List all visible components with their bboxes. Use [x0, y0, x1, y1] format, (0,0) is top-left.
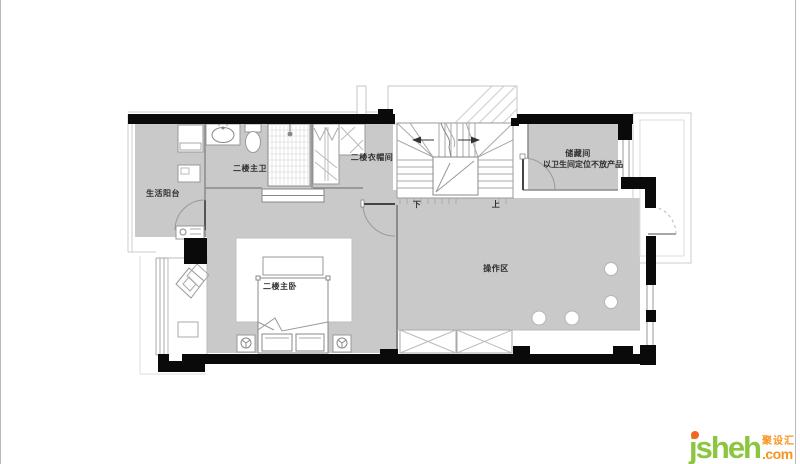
label-operation-area: 操作区 — [468, 264, 524, 273]
floor-spot — [565, 311, 579, 325]
wall-bump-bed — [380, 349, 398, 354]
wall-right-mullion — [646, 310, 656, 322]
jsheh-logo: jsheh 聚设汇 .com — [689, 435, 795, 461]
pillow-right — [296, 334, 324, 351]
terrace-door-arc — [648, 206, 676, 234]
shower-head — [288, 132, 293, 137]
label-cloakroom: 二楼衣帽间 — [343, 153, 401, 162]
floor-spot — [605, 296, 618, 309]
wall-bottom — [160, 354, 656, 364]
toilet-bowl — [246, 132, 261, 153]
wall-bump-1 — [513, 346, 530, 354]
wall-right-mid — [646, 236, 656, 285]
pillow-left — [262, 334, 292, 351]
label-storage: 储藏间 — [550, 149, 606, 158]
logo-dot-icon — [691, 431, 699, 439]
wall-pier-cloakroom — [378, 109, 393, 115]
floorplan-linework — [0, 0, 800, 464]
sink-basin — [212, 128, 234, 143]
label-master-bath: 二楼主卫 — [224, 164, 276, 173]
toilet-tank — [245, 124, 261, 132]
wall-right-upper — [645, 177, 656, 208]
floor-spot — [532, 311, 546, 325]
bay-window-glazing — [156, 258, 168, 355]
wall-bump-2 — [613, 346, 633, 354]
floorplan-page: 生活阳台 二楼主卫 二楼衣帽间 储藏间 以卫生间定位不放产品 操作区 二楼主卧 … — [0, 0, 800, 464]
label-storage-note: 以卫生间定位不放产品 — [541, 160, 625, 169]
logo-domain-suffix: .com — [762, 447, 793, 461]
storage-window — [623, 140, 629, 177]
label-master-bedroom: 二楼主卧 — [254, 282, 306, 291]
wall-top-left — [128, 114, 395, 124]
wall-notch — [169, 354, 182, 361]
bedroom-door-arc — [363, 204, 395, 236]
wall-top-right — [517, 114, 633, 124]
dresser — [263, 257, 323, 275]
floor-spot — [605, 263, 618, 276]
label-stair-up: 上 — [490, 200, 502, 209]
label-balcony: 生活阳台 — [137, 189, 189, 198]
flue-outline — [357, 86, 366, 115]
label-stair-down: 下 — [411, 200, 423, 209]
wall-storage-pier — [618, 124, 632, 140]
wall-left-pier — [184, 238, 207, 264]
logo-wordmark: jsheh — [689, 435, 760, 461]
washer-box — [178, 125, 203, 152]
